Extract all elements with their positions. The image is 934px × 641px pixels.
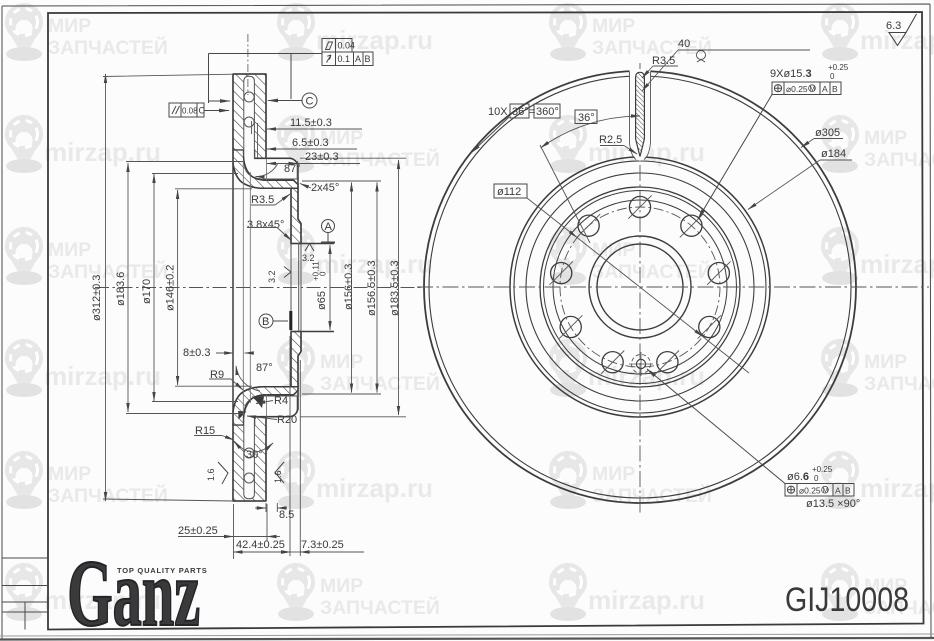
svg-text:+0.11: +0.11 — [312, 261, 321, 281]
svg-text:C: C — [306, 96, 314, 108]
svg-text:+0.25: +0.25 — [828, 63, 849, 72]
svg-text:87°: 87° — [284, 163, 301, 175]
svg-text:mirzap.ru: mirzap.ru — [588, 585, 705, 615]
svg-text:mirzap.ru: mirzap.ru — [44, 361, 161, 391]
svg-text:0.04: 0.04 — [338, 41, 356, 51]
svg-text:R20: R20 — [277, 414, 297, 426]
svg-text:МИР: МИР — [592, 15, 635, 37]
svg-text:ø65: ø65 — [316, 291, 328, 310]
svg-text:=: = — [529, 106, 535, 118]
svg-text:МИР: МИР — [320, 351, 363, 373]
svg-text:ЗАПЧАСТЕЙ: ЗАПЧАСТЕЙ — [48, 483, 168, 507]
svg-text:6.3: 6.3 — [886, 20, 901, 32]
svg-text:M: M — [823, 488, 829, 495]
svg-text:1.6: 1.6 — [273, 470, 283, 483]
svg-text:GIJ10008: GIJ10008 — [785, 581, 909, 619]
svg-text:8±0.3: 8±0.3 — [183, 347, 210, 359]
svg-text:МИР: МИР — [592, 463, 635, 485]
svg-text:87°: 87° — [256, 362, 273, 374]
svg-text:0: 0 — [814, 474, 819, 483]
svg-text:B: B — [845, 486, 851, 496]
svg-text:⌀0.25: ⌀0.25 — [799, 486, 821, 496]
svg-text:МИР: МИР — [864, 127, 907, 149]
svg-text:⌀0.25: ⌀0.25 — [786, 84, 808, 94]
svg-text:ø170: ø170 — [141, 279, 153, 304]
svg-text:23±0.3: 23±0.3 — [305, 151, 339, 163]
svg-text:ЗАПЧАСТЕЙ: ЗАПЧАСТЕЙ — [592, 259, 712, 283]
svg-text:МИР: МИР — [320, 575, 363, 597]
svg-text:МИР: МИР — [864, 351, 907, 373]
svg-text:36°: 36° — [578, 112, 595, 124]
svg-text:2x45°: 2x45° — [311, 182, 339, 194]
svg-text:3.2: 3.2 — [267, 270, 277, 283]
svg-text:C: C — [199, 106, 206, 116]
svg-text:8.5: 8.5 — [279, 509, 294, 521]
svg-text:0: 0 — [319, 271, 328, 276]
svg-text:10X: 10X — [488, 106, 508, 118]
svg-text:3.2: 3.2 — [302, 253, 315, 263]
svg-text:mirzap.ru: mirzap.ru — [44, 137, 161, 167]
svg-text:+0.25: +0.25 — [812, 465, 833, 474]
svg-text:ø183.6: ø183.6 — [115, 272, 127, 306]
svg-text:МИР: МИР — [48, 15, 91, 37]
svg-text:1.6: 1.6 — [206, 468, 216, 481]
svg-text:B: B — [262, 316, 269, 328]
svg-text:0.08: 0.08 — [182, 107, 198, 116]
svg-text:M: M — [810, 86, 816, 93]
svg-text:ЗАПЧАСТЕЙ: ЗАПЧАСТЕЙ — [48, 35, 168, 59]
svg-text:A: A — [325, 221, 333, 233]
svg-text:0: 0 — [830, 72, 835, 81]
svg-text:ø184: ø184 — [821, 148, 846, 160]
svg-text:ø112: ø112 — [497, 186, 521, 198]
svg-text:ø156±0.3: ø156±0.3 — [343, 264, 355, 310]
svg-text:11.5±0.3: 11.5±0.3 — [290, 117, 332, 129]
svg-text:R4: R4 — [274, 395, 288, 407]
svg-text:9Xø15.3: 9Xø15.3 — [770, 68, 812, 80]
svg-text:ø13.5 ×90°: ø13.5 ×90° — [806, 498, 860, 510]
svg-text:ø305: ø305 — [815, 127, 840, 139]
svg-text:0.1: 0.1 — [338, 54, 351, 64]
svg-text:42.4±0.25: 42.4±0.25 — [236, 539, 285, 551]
svg-text:Ganz: Ganz — [67, 540, 200, 641]
svg-text:TOP QUALITY PARTS: TOP QUALITY PARTS — [117, 566, 208, 575]
svg-text:7.3±0.25: 7.3±0.25 — [301, 539, 344, 551]
svg-text:360°: 360° — [536, 106, 559, 118]
svg-text:ø156.5±0.3: ø156.5±0.3 — [366, 260, 378, 316]
svg-text:ЗАПЧАСТЕЙ: ЗАПЧАСТЕЙ — [320, 371, 440, 395]
svg-text:МИР: МИР — [48, 239, 91, 261]
svg-text:ø146±0.2: ø146±0.2 — [165, 265, 177, 311]
svg-text:ø6.6: ø6.6 — [787, 471, 809, 483]
svg-text:R2.5: R2.5 — [599, 134, 622, 146]
svg-text:ø183.5±0.3: ø183.5±0.3 — [389, 260, 401, 316]
svg-text:B: B — [832, 84, 838, 94]
svg-text:МИР: МИР — [48, 463, 91, 485]
svg-text:R3.5: R3.5 — [251, 194, 274, 206]
svg-text:6.5±0.3: 6.5±0.3 — [292, 137, 329, 149]
svg-text:ЗАПЧАСТЕЙ: ЗАПЧАСТЕЙ — [864, 147, 934, 171]
svg-text:B: B — [365, 54, 371, 64]
svg-text:25±0.25: 25±0.25 — [178, 525, 218, 537]
svg-text:mirzap.ru: mirzap.ru — [316, 25, 433, 55]
svg-text:36°: 36° — [512, 106, 529, 118]
svg-text:40: 40 — [678, 38, 690, 50]
svg-text:ø312±0.3: ø312±0.3 — [91, 275, 103, 321]
svg-text:mirzap.ru: mirzap.ru — [316, 473, 433, 503]
svg-text:A: A — [355, 54, 361, 64]
svg-text:A: A — [835, 486, 841, 496]
svg-text:ЗАПЧАСТЕЙ: ЗАПЧАСТЕЙ — [320, 595, 440, 619]
svg-text:R3.5: R3.5 — [652, 55, 675, 67]
svg-text:A: A — [822, 84, 828, 94]
